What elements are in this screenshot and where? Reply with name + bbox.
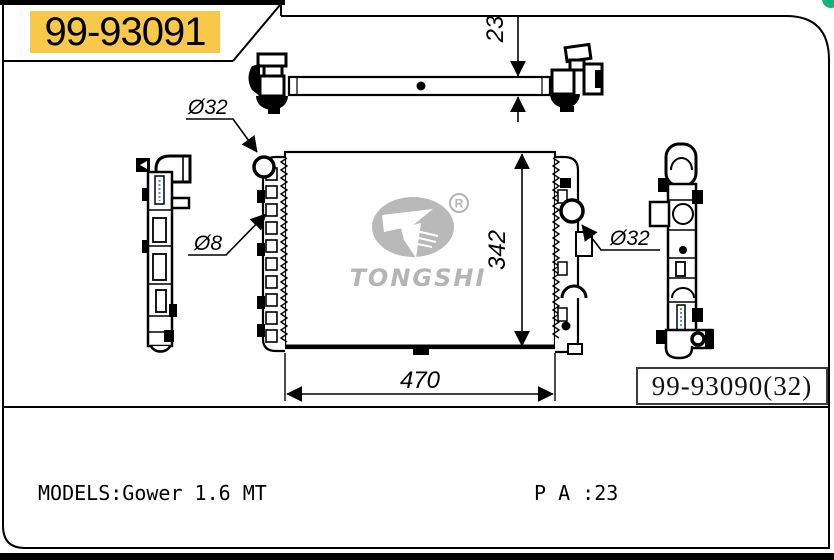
spec-models: MODELS:Gower 1.6 MT: [38, 480, 267, 507]
label-diameter-32-left: Ø32: [187, 96, 228, 119]
logo-brand-text: TONGSHI: [350, 264, 487, 292]
datasheet-page: 23 R TONGSHI: [0, 0, 834, 560]
registered-trademark-letter: R: [455, 197, 464, 211]
side-view-left: [136, 156, 190, 352]
top-view-right-connector: [550, 44, 603, 112]
dim-23-label: 23: [482, 15, 509, 43]
callout-outlet-right: Ø32: [582, 225, 660, 250]
spec-list-left: MODELS:Gower 1.6 MT COSUZ SIZE:470×342 T…: [38, 426, 267, 560]
banner-top-strip: [0, 0, 285, 5]
top-view-left-connector: [249, 54, 289, 114]
corner-green-dot: [822, 0, 834, 8]
dimension-23: 23: [482, 15, 518, 122]
label-diameter-8: Ø8: [193, 232, 222, 255]
outlet-port-right: [561, 200, 583, 222]
reference-number-box: 99-93090(32): [636, 367, 828, 405]
spec-list-right: P A :23 DPI : OEM : 377121253C NISSENS:: [534, 426, 727, 560]
part-number-title: 99-93091: [30, 11, 220, 53]
dimension-470: 470: [285, 353, 555, 401]
inlet-port-left: [254, 157, 274, 177]
callout-inlet-left: Ø32: [186, 96, 257, 152]
spec-pa: P A :23: [534, 480, 727, 507]
callout-hole-8: Ø8: [188, 214, 266, 255]
label-diameter-32-right: Ø32: [609, 227, 650, 250]
side-view-right: [650, 144, 714, 358]
front-view-left-tank: [254, 157, 287, 351]
radiator-front-view: R TONGSHI: [186, 96, 660, 401]
front-view-right-tank: [553, 157, 592, 354]
dim-342-label: 342: [484, 230, 511, 270]
dim-470-label: 470: [400, 367, 441, 394]
radiator-top-view: 23: [249, 15, 604, 122]
